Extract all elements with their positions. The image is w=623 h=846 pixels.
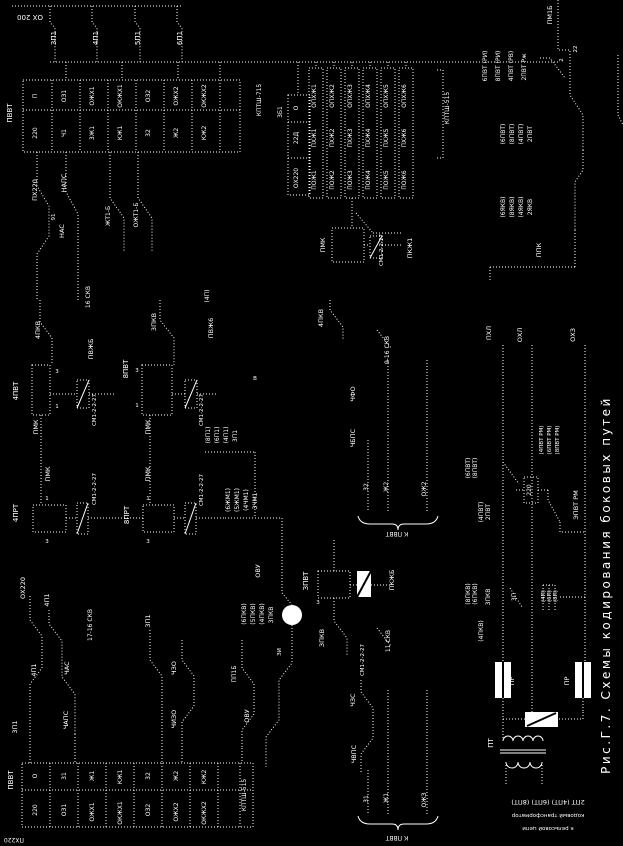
diagram-label: 31 <box>61 772 68 780</box>
diagram-label: ПМК <box>144 466 152 481</box>
diagram-label: 3ЧМ1 <box>252 492 259 509</box>
diagram-label: ЧАПС <box>62 710 70 729</box>
diagram-label: 32 <box>145 129 152 137</box>
diagram-label: ПОЖ6 <box>401 170 408 190</box>
diagram-label: (5ЖМ1) <box>234 488 241 512</box>
diagram-label: 9-16 СКВ <box>384 336 391 364</box>
diagram-label: ЧЗО <box>170 661 178 675</box>
diagram-label: ПМК <box>319 237 327 252</box>
diagram-label: ППК <box>535 242 543 257</box>
diagram-label: ОКЖХ1 <box>117 84 124 108</box>
diagram-label: 220 <box>526 484 533 496</box>
diagram-label: (5ПКВ) <box>250 603 257 624</box>
diagram-label: 2 <box>559 58 565 62</box>
lamp-node <box>282 605 302 625</box>
diagram-label: ПМК <box>44 466 52 481</box>
diagram-label: КЖ2 <box>201 770 208 785</box>
diagram-label: 3Б1 <box>277 106 284 118</box>
diagram-label: ОПХЖ4 <box>365 84 372 108</box>
diagram-label: 3 <box>45 539 49 545</box>
diagram-label: (4ПКВ) <box>259 603 266 624</box>
diagram-label: 3П <box>511 593 518 601</box>
diagram-label: 6ПВТ (РИ) <box>482 51 489 82</box>
diagram-label: ЗИ <box>277 648 283 656</box>
diagram-label: КПТШ-515 <box>444 92 451 125</box>
diagram-label: ОЖ2 <box>421 481 428 496</box>
diagram-label: ЗПКВ <box>318 629 326 647</box>
diagram-label: ПХЖ6 <box>401 128 408 147</box>
diagram-label: 5П1 <box>134 31 142 45</box>
diagram-label: ОПХЖ5 <box>383 84 390 108</box>
diagram-label: ОХ220 <box>19 577 27 599</box>
diagram-label: ПОЖ2 <box>329 170 336 190</box>
diagram-label: КЖ2 <box>201 126 208 141</box>
diagram-label: (8П) <box>553 590 559 602</box>
diagram-label: ОПХЖ3 <box>347 84 354 108</box>
diagram-label: ПХ220 <box>31 179 39 201</box>
diagram-label: (6ПКВ) <box>472 583 479 604</box>
diagram-label: 1 <box>146 496 150 502</box>
diagram-label: (4ПВТ) <box>518 124 525 145</box>
diagram-label: 1 <box>45 496 49 502</box>
diagram-label: 4ПКВ <box>34 321 42 339</box>
diagram-label: Ж2 <box>173 771 180 781</box>
diagram-label: 4П1 <box>30 663 38 676</box>
diagram-label: 3П1 <box>11 720 19 733</box>
diagram-label: ПХЖ4 <box>365 128 372 147</box>
diagram-label: 3 <box>135 368 139 374</box>
diagram-label: СМ1-2-2-27 <box>199 393 205 426</box>
diagram-label: 1 <box>55 404 59 410</box>
diagram-label: ЧИЗО <box>170 710 178 729</box>
diagram-label: ЧВПС <box>350 744 358 763</box>
diagram-label: (6ЯКВ) <box>500 196 507 217</box>
diagram-label: ПВЖБ <box>87 339 95 360</box>
diagram-label: ПХЖ1 <box>311 128 318 147</box>
diagram-label: ПКЖ1 <box>406 238 414 259</box>
diagram-label: 31 <box>363 795 370 803</box>
diagram-label: (4П) <box>204 289 211 302</box>
diagram-label: ОЗ1 <box>61 90 68 103</box>
diagram-label: ПХ220 <box>4 836 24 843</box>
diagram-label: 3 <box>146 539 150 545</box>
diagram-label: 8ПВТ <box>122 359 130 379</box>
diagram-label: ЖТ1-Б <box>105 206 112 226</box>
diagram-label: (6ПВТ) <box>500 124 507 145</box>
diagram-label: ПКЖБ <box>388 570 396 591</box>
diagram-label: ОЖХ1 <box>89 86 96 105</box>
diagram-label: ОВУ <box>243 709 251 723</box>
diagram-label: (4ПВТ РМ) <box>539 426 545 455</box>
diagram-label: К ПВВТ <box>385 834 408 841</box>
diagram-label: ПП1Б <box>231 666 238 683</box>
diagram-label: ЧАС <box>63 661 71 675</box>
diagram-label: ОКЖХ2 <box>201 801 208 825</box>
diagram-label: ОКЖХ2 <box>201 84 208 108</box>
diagram-label: ОХ 200 <box>17 13 43 21</box>
diagram-label: 3 <box>55 369 59 375</box>
diagram-label: ОЖХ2 <box>173 86 180 105</box>
diagram-label: 4ПКВ <box>317 309 325 327</box>
diagram-label: КПТШ-515 <box>241 779 248 812</box>
diagram-label: ПОЖ3 <box>347 170 354 190</box>
diagram-label: (4ЧМ1) <box>243 489 250 511</box>
diagram-label: ОЖХ1 <box>89 802 96 821</box>
diagram-label: 220 <box>32 127 39 139</box>
diagram-label: ЗПВТ <box>302 571 310 591</box>
diagram-label: ПМК <box>32 419 40 434</box>
diagram-label: ОЗ1 <box>61 804 68 817</box>
diagram-label: Рис.Г.7. Схемы кодирования боковых путей <box>599 396 613 774</box>
diagram-label: ОПХЖ6 <box>401 84 408 108</box>
diagram-label: 2ЯКВ <box>527 199 534 215</box>
diagram-label: ПР <box>508 677 516 686</box>
diagram-label: ОПХЖ2 <box>329 84 336 108</box>
diagram-label: ОХЛ <box>516 328 524 343</box>
diagram-label: Ж1 <box>89 771 96 781</box>
diagram-label: СМ1-2-2-27 <box>379 233 385 266</box>
diagram-label: ЧФО <box>349 386 357 401</box>
diagram-label: 2ПВТ <box>527 126 534 142</box>
diagram-label: ПХЛ <box>485 326 493 340</box>
diagram-label: ОПХЖ1 <box>311 84 318 108</box>
diagram-label: ПХЖ5 <box>383 128 390 147</box>
diagram-label: ПМК <box>144 419 152 434</box>
diagram-label: КЖ1 <box>117 126 124 141</box>
diagram-label: ПМ1Б <box>546 5 554 24</box>
diagram-label: 32 <box>145 772 152 780</box>
diagram-label: 3ПКВ <box>485 589 492 606</box>
diagram-label: НАС <box>58 224 66 238</box>
diagram-label: 2ПВТ <box>485 504 492 520</box>
diagram-label: О <box>293 105 300 110</box>
diagram-label: 8ПВТ (РИ) <box>495 51 502 82</box>
diagram-label: 91 <box>51 214 57 221</box>
diagram-label: ОЖТ1-Б <box>133 203 140 228</box>
diagram-label: ОЖЗ <box>421 792 428 807</box>
diagram-label: кодовый трансформатор <box>511 812 584 819</box>
diagram-label: НАПС <box>60 173 68 192</box>
schematic-canvas: ОХ 2003П14П15П16П1ПВВТП220ОЗ1Ч1ОЖХ13Ж1ОК… <box>0 0 623 846</box>
diagram-label: (8ПВТ) <box>509 124 516 145</box>
diagram-label: ОКЖХ1 <box>117 801 124 825</box>
diagram-label: СМ1-2-2-27 <box>199 473 205 506</box>
diagram-label: 22 <box>573 46 579 53</box>
diagram-label: (6ПКВ) <box>241 603 248 624</box>
diagram-label: (4П1) <box>223 427 230 444</box>
diagram-label: (4ПКВ) <box>478 620 485 641</box>
diagram-label: Ж2 <box>383 482 390 492</box>
diagram-label: (6ПВТ) <box>465 458 472 479</box>
diagram-label: 3ПКВ <box>150 313 158 331</box>
diagram-label: Ж1 <box>383 793 390 803</box>
diagram-label: Ч1 <box>61 129 68 137</box>
diagram-label: 1 <box>135 403 139 409</box>
diagram-label: ПВВТ <box>6 103 14 123</box>
diagram-label: (8ЯКВ) <box>509 196 516 217</box>
diagram-label: СМ1-2-2-27 <box>92 472 98 505</box>
diagram-label: 4ПРТ <box>12 503 20 522</box>
diagram-label: ПТ <box>487 738 495 748</box>
diagram-label: (4ПВТ) <box>478 502 485 523</box>
diagram-label: 2ПВТ Рж <box>521 53 528 81</box>
diagram-label: (6П1) <box>214 427 221 444</box>
diagram-label: ЧЗС <box>349 693 357 707</box>
diagram-label: 2ПТ (4ПТ) (6ПТ) (8ПТ) <box>511 798 584 806</box>
diagram-label: 32 <box>363 483 370 491</box>
diagram-label: ОЗ2 <box>145 804 152 817</box>
diagram-label: (8ПКВ) <box>465 583 472 604</box>
diagram-label: ОЗ2 <box>145 90 152 103</box>
diagram-label: ПР <box>563 677 571 686</box>
diagram-label: КПТШ-715 <box>256 84 263 117</box>
diagram-label: (8ПВТ РМ) <box>555 426 561 455</box>
diagram-label: КЖ1 <box>117 770 124 785</box>
diagram-label: ПОЖ4 <box>365 170 372 190</box>
diagram-label: В <box>253 376 257 382</box>
diagram-label: ОХЗ <box>569 328 577 342</box>
diagram-label: 3 <box>316 600 320 606</box>
diagram-label: 4ПВТ (РВ) <box>508 51 515 81</box>
diagram-label: 3П1 <box>144 614 152 627</box>
diagram-label: ПХЖ2 <box>329 128 336 147</box>
diagram-label: (4ЯКВ) <box>518 196 525 217</box>
diagram-label: ПВЖ6 <box>207 318 215 338</box>
diagram-label: (8П1) <box>205 427 212 444</box>
diagram-label: Ж2 <box>173 128 180 138</box>
diagram-label: П <box>32 94 39 99</box>
diagram-label: 16 СКВ <box>85 286 92 308</box>
diagram-label: 3П1 <box>50 31 58 45</box>
diagram-label: 6П1 <box>176 31 184 45</box>
diagram-label: 4П1 <box>92 31 100 45</box>
diagram-label: ЧБПС <box>349 428 357 447</box>
schematic-page: ОХ 2003П14П15П16П1ПВВТП220ОЗ1Ч1ОЖХ13Ж1ОК… <box>0 0 623 846</box>
diagram-label: ОЖХ2 <box>173 802 180 821</box>
diagram-label: ПХЖ3 <box>347 128 354 147</box>
diagram-label: 3Ж1 <box>89 126 96 140</box>
diagram-label: (6ПВТ РМ) <box>547 426 553 455</box>
diagram-label: 8ПРТ <box>123 505 131 524</box>
diagram-label: 3ПКВ <box>268 607 275 624</box>
diagram-label: СМ1-2-2-27 <box>360 643 366 676</box>
diagram-label: (8ПВТ) <box>472 458 479 479</box>
diagram-label: СМ1-2-2-27 <box>92 393 98 426</box>
diagram-label: О <box>32 773 39 778</box>
diagram-label: К ПВВТ <box>385 530 408 537</box>
diagram-label: 3П1 <box>232 430 239 442</box>
diagram-label: 11 СКВ <box>385 630 392 652</box>
diagram-label: ПВВТ <box>7 770 15 790</box>
diagram-label: 4П1 <box>43 593 51 606</box>
diagram-label: ЭПВТ РМ <box>572 490 580 519</box>
diagram-label: (6ЖМ1) <box>225 488 232 512</box>
diagram-label: 4ПВТ <box>12 381 20 401</box>
diagram-label: к рельсовой цепи <box>522 825 574 832</box>
diagram-label: ОХ220 <box>293 168 300 188</box>
diagram-label: 22Д <box>293 132 300 145</box>
diagram-label: ПОЖ1 <box>311 170 318 190</box>
diagram-label: ОВУ <box>254 564 262 578</box>
diagram-label: ПОЖ5 <box>383 170 390 190</box>
diagram-label: 17-16 СКВ <box>87 609 94 641</box>
diagram-label: 220 <box>32 804 39 816</box>
